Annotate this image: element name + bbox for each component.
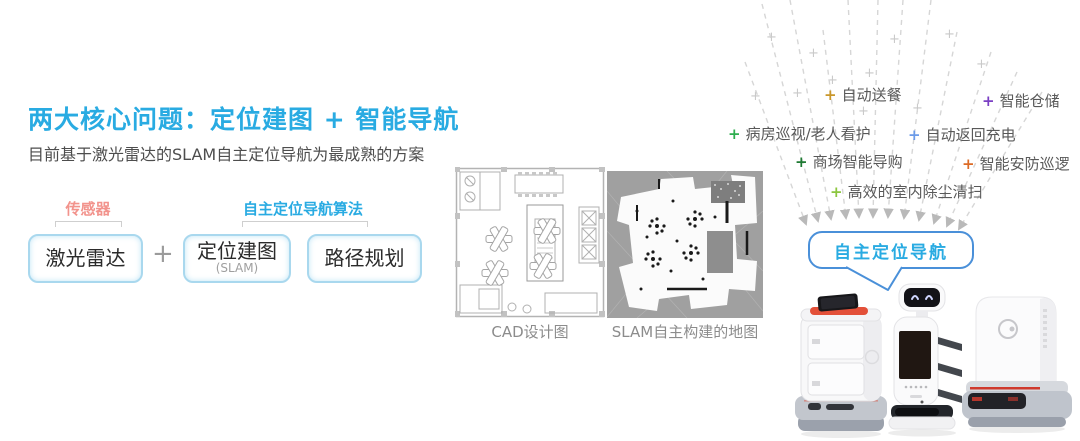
application-label: 病房巡视/老人看护 <box>746 123 871 144</box>
application-label: 高效的室内除尘清扫 <box>848 181 983 202</box>
algorithm-bracket <box>242 221 368 227</box>
plus-marker: + <box>824 86 837 104</box>
application-label: 自动送餐 <box>842 84 902 105</box>
cad-floorplan-figure <box>455 167 605 318</box>
slam-box-label: 定位建图 <box>197 241 277 262</box>
application-label: 智能仓储 <box>1000 90 1060 111</box>
robot-delivery-cabinet <box>788 293 894 439</box>
cad-caption: CAD设计图 <box>455 321 605 342</box>
page-title: 两大核心问题：定位建图 + 智能导航 <box>28 100 459 136</box>
plus-marker: + <box>728 125 741 143</box>
slam-box-sublabel: (SLAM) <box>216 262 259 275</box>
application-mall-shopping-guide: + 商场智能导购 <box>795 151 903 172</box>
path-planning-box-label: 路径规划 <box>325 248 405 269</box>
plus-marker: + <box>962 155 975 173</box>
application-security-patrol: + 智能安防巡逻 <box>962 153 1070 174</box>
application-ward-patrol: + 病房巡视/老人看护 <box>728 123 871 144</box>
plus-marker: + <box>908 126 921 144</box>
application-auto-meal-delivery: + 自动送餐 <box>824 84 902 105</box>
sensor-bracket <box>55 221 122 227</box>
algorithm-group-label: 自主定位导航算法 <box>238 198 368 219</box>
slam-box: 定位建图 (SLAM) <box>183 234 291 283</box>
plus-marker: + <box>982 92 995 110</box>
robot-service-trays <box>880 281 966 437</box>
sensor-group-label: 传感器 <box>53 198 123 219</box>
bubble-tail <box>830 266 910 294</box>
application-smart-warehouse: + 智能仓储 <box>982 90 1060 111</box>
robot-vacuum-cabinet <box>956 291 1078 433</box>
application-label: 商场智能导购 <box>813 151 903 172</box>
path-planning-box: 路径规划 <box>307 234 422 283</box>
slide: 两大核心问题：定位建图 + 智能导航 目前基于激光雷达的SLAM自主定位导航为最… <box>0 0 1080 441</box>
plus-marker: + <box>830 183 843 201</box>
application-label: 智能安防巡逻 <box>980 153 1070 174</box>
application-auto-recharge: + 自动返回充电 <box>908 124 1016 145</box>
page-subtitle: 目前基于激光雷达的SLAM自主定位导航为最成熟的方案 <box>28 141 424 165</box>
autonomous-navigation-bubble: 自主定位导航 <box>808 231 974 269</box>
plus-sign: + <box>152 239 174 269</box>
lidar-box-label: 激光雷达 <box>46 248 126 269</box>
application-indoor-cleaning: + 高效的室内除尘清扫 <box>830 181 983 202</box>
slam-caption: SLAM自主构建的地图 <box>603 321 767 342</box>
lidar-box: 激光雷达 <box>28 234 143 283</box>
application-label: 自动返回充电 <box>926 124 1016 145</box>
plus-marker: + <box>795 153 808 171</box>
bubble-label: 自主定位导航 <box>834 238 948 263</box>
